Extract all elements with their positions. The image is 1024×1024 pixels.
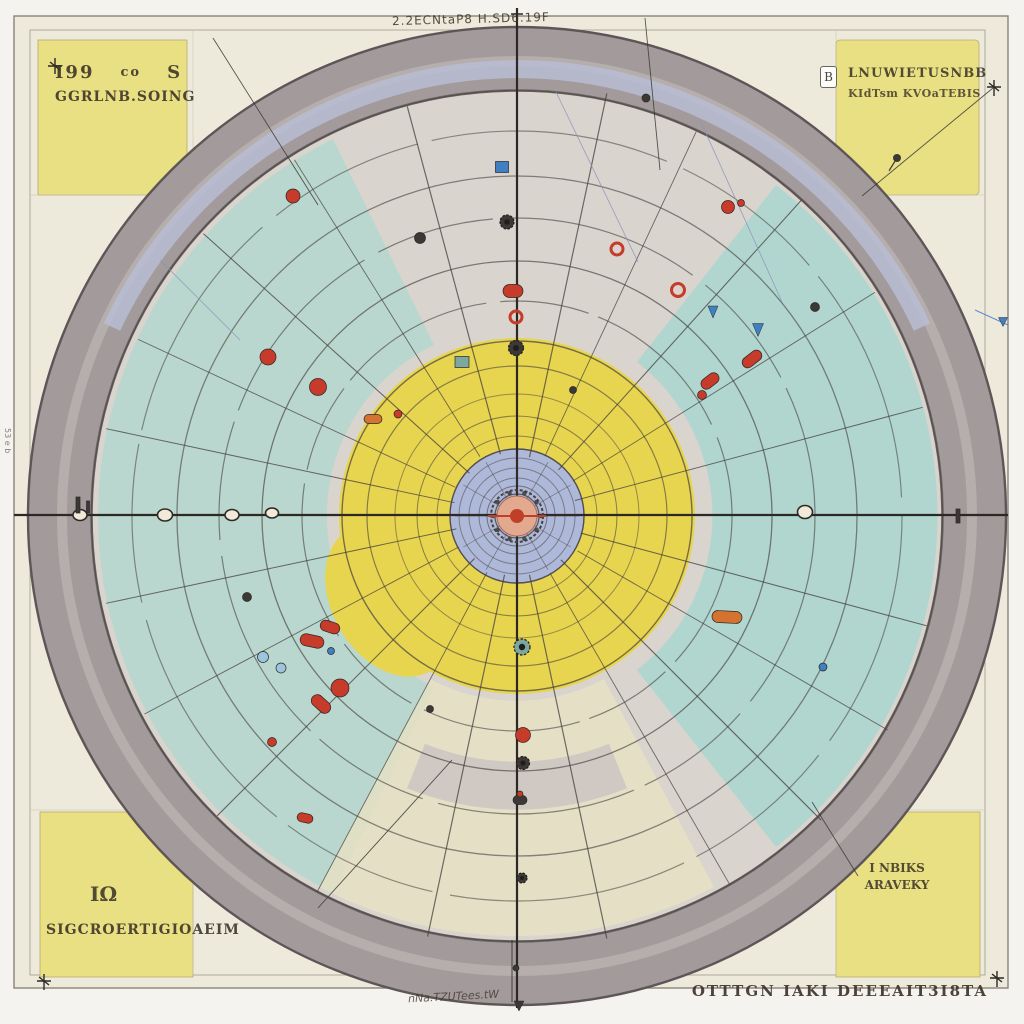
label-bottom-right: I NBIKS ARAVEKY	[852, 860, 942, 894]
marker-dot	[513, 965, 519, 971]
marker-dot	[698, 391, 707, 400]
marker-gear-core	[504, 219, 510, 225]
label-left-edge: 53 e b	[3, 428, 12, 453]
marker-dot	[642, 94, 650, 102]
label-top-left: I99 co S GGRLNB.SOING	[55, 62, 196, 105]
marker-dot	[331, 679, 349, 697]
marker-gear-core	[519, 644, 525, 650]
marker-rect	[496, 162, 509, 173]
marker-dot	[819, 663, 827, 671]
label-top-right-line1: LNUWIETUSNBB	[848, 66, 974, 81]
marker-dot	[570, 387, 577, 394]
label-bottom-title: OTTTGN IAKI DEEEAIT3I8TA	[570, 982, 988, 1000]
label-top-left-line2: GGRLNB.SOING	[55, 89, 196, 105]
marker-dot	[722, 201, 735, 214]
marker-knob	[266, 508, 279, 518]
marker-gear-core	[520, 876, 524, 880]
label-bottom-left-line: SIGCROERTIGIOAEIM	[46, 922, 240, 938]
marker-gear-core	[513, 345, 519, 351]
marker-rect	[956, 509, 960, 523]
marker-dot	[427, 706, 434, 713]
diagram-page: I99 co S GGRLNB.SOING LNUWIETUSNBB KIdTs…	[0, 0, 1024, 1024]
label-bottom-left-num: IΩ	[90, 882, 117, 906]
label-tl-end: S	[167, 62, 182, 83]
marker-dot	[516, 728, 531, 743]
marker-rect	[455, 357, 469, 368]
marker-dot	[811, 303, 820, 312]
badge-b: B	[820, 66, 837, 88]
marker-capsule	[503, 285, 523, 298]
label-bottom-right-line2: ARAVEKY	[852, 877, 942, 894]
marker-dot	[394, 410, 402, 418]
label-top-right: LNUWIETUSNBB KIdTsm KVOaTEBIS	[848, 66, 974, 100]
marker-dot	[268, 738, 277, 747]
marker-dot	[276, 663, 286, 673]
label-top-right-line2: KIdTsm KVOaTEBIS	[848, 87, 974, 100]
label-tl-mid: co	[120, 65, 141, 80]
marker-dot	[517, 791, 523, 797]
label-bottom-right-line1: I NBIKS	[852, 860, 942, 877]
marker-gear-core	[520, 760, 525, 765]
marker-dot	[243, 593, 252, 602]
marker-dot	[310, 379, 327, 396]
marker-rect	[76, 497, 80, 513]
marker-dot	[328, 648, 335, 655]
marker-capsule	[712, 610, 743, 624]
marker-rect	[87, 501, 90, 513]
label-top-left-line1: I99 co S	[55, 62, 196, 83]
marker-dot	[415, 233, 426, 244]
label-tl-num: I99	[55, 62, 94, 83]
marker-knob	[158, 509, 173, 521]
marker-dot	[260, 349, 276, 365]
marker-dot	[738, 200, 745, 207]
marker-dot	[258, 652, 269, 663]
marker-knob	[798, 506, 813, 519]
marker-knob	[225, 510, 239, 521]
marker-dot	[286, 189, 300, 203]
marker-capsule	[364, 415, 382, 424]
